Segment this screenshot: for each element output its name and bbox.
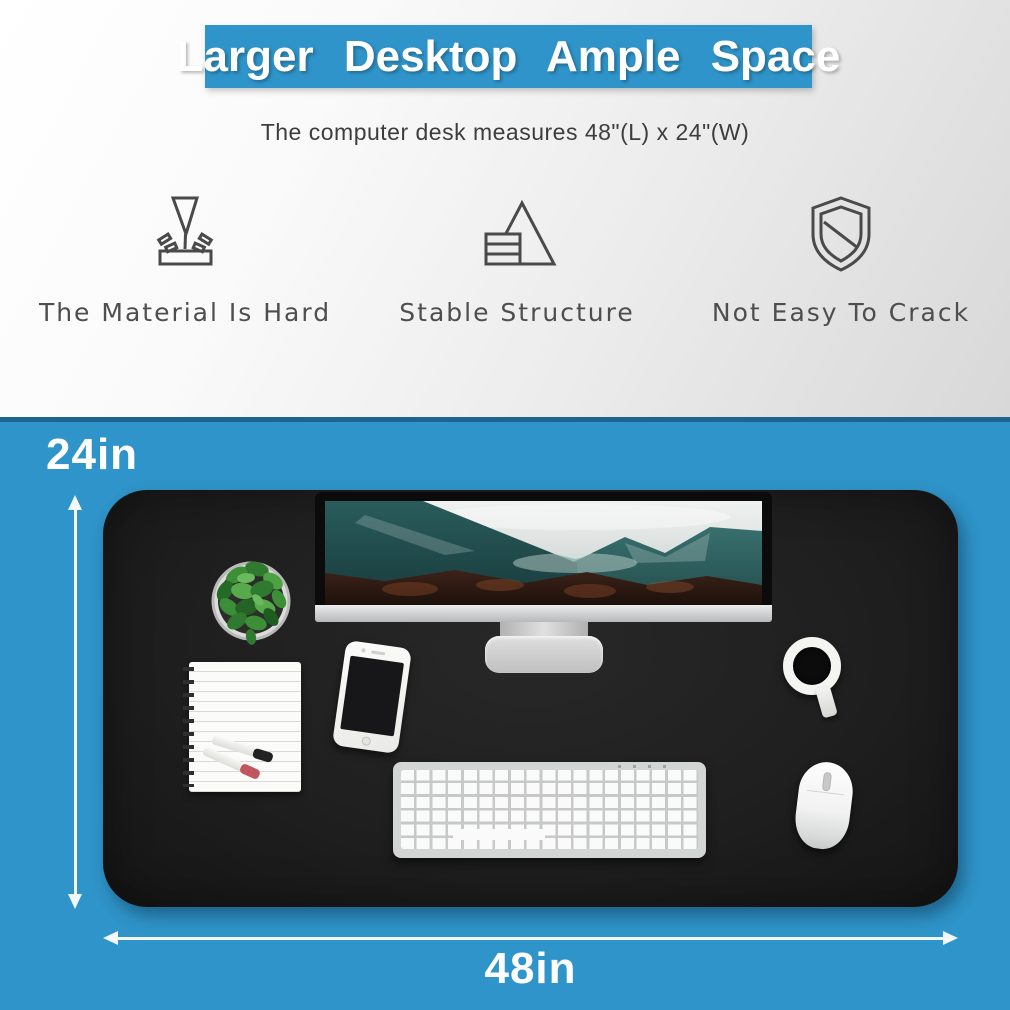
keyboard-spacebar [453, 829, 545, 840]
hardness-press-icon [145, 182, 225, 274]
monitor-stand-base [485, 636, 603, 673]
monitor-stand-neck [500, 622, 588, 637]
feature-label: The Material Is Hard [39, 298, 331, 327]
height-dimension-label: 24in [46, 430, 138, 480]
smartphone [332, 640, 412, 754]
phone-screen [340, 656, 404, 737]
top-section: Larger Desktop Ample Space The computer … [0, 0, 1010, 417]
width-dimension-label: 48in [103, 944, 958, 994]
phone-earpiece [371, 650, 385, 655]
keyboard-keys [401, 770, 698, 849]
desk-scene-section: 24in [0, 417, 1010, 1010]
feature-stable-structure: Stable Structure [357, 182, 677, 327]
mouse-seam [807, 790, 845, 796]
feature-label: Not Easy To Crack [712, 298, 970, 327]
phone-camera [361, 648, 366, 653]
feature-not-crack: Not Easy To Crack [681, 182, 1001, 327]
vertical-dimension-arrow [67, 495, 83, 909]
coffee-cup [783, 637, 841, 695]
mouse-scroll-wheel [823, 773, 831, 791]
cup-handle [815, 686, 838, 719]
feature-label: Stable Structure [399, 298, 634, 327]
mouse [792, 759, 856, 852]
desk-surface [103, 490, 958, 907]
shield-icon [805, 182, 877, 274]
section-divider [0, 417, 1010, 422]
keyboard-indicator-lights [618, 765, 676, 768]
keyboard [393, 762, 706, 858]
monitor-chin [315, 605, 772, 622]
title-banner: Larger Desktop Ample Space [205, 25, 812, 88]
spiral-notebook [189, 662, 301, 792]
stable-structure-icon [477, 182, 557, 274]
measurement-subtitle: The computer desk measures 48"(L) x 24"(… [0, 119, 1010, 146]
phone-home-button [361, 736, 371, 746]
monitor-screen [315, 492, 772, 605]
potted-plant [199, 545, 303, 649]
product-infographic: Larger Desktop Ample Space The computer … [0, 0, 1010, 1010]
feature-material-hard: The Material Is Hard [25, 182, 345, 327]
banner-title: Larger Desktop Ample Space [177, 32, 841, 82]
